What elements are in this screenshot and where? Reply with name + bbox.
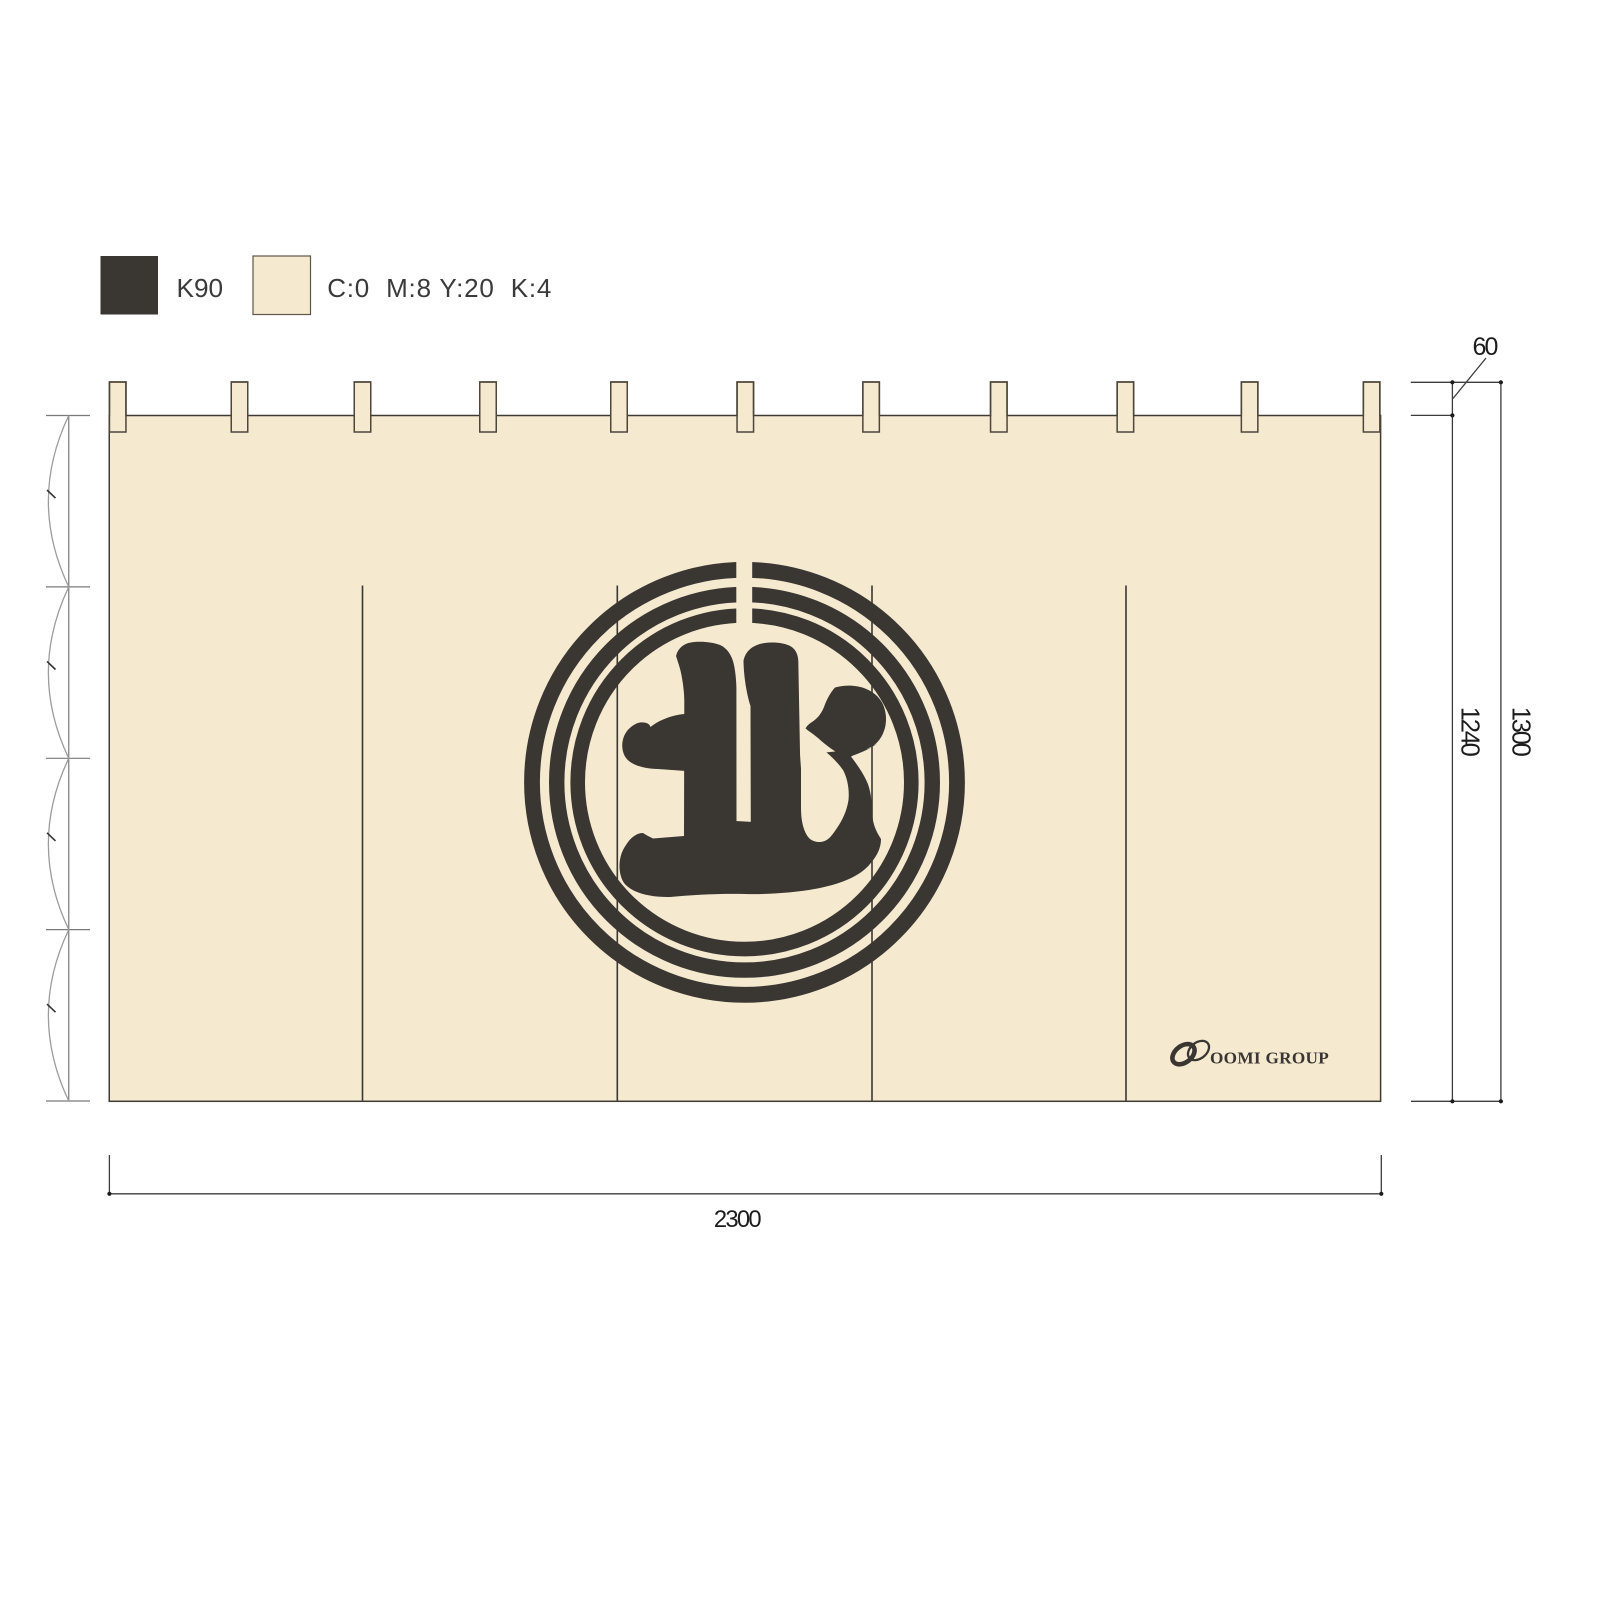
svg-text:1300: 1300 [1507, 707, 1535, 757]
svg-text:K90: K90 [177, 273, 224, 303]
svg-text:60: 60 [1472, 333, 1497, 361]
svg-text:C:0 M:8 Y:20 K:4: C:0 M:8 Y:20 K:4 [327, 273, 552, 303]
svg-text:OOMI GROUP: OOMI GROUP [1210, 1049, 1329, 1068]
svg-text:2300: 2300 [714, 1206, 762, 1233]
svg-text:1240: 1240 [1456, 707, 1484, 757]
